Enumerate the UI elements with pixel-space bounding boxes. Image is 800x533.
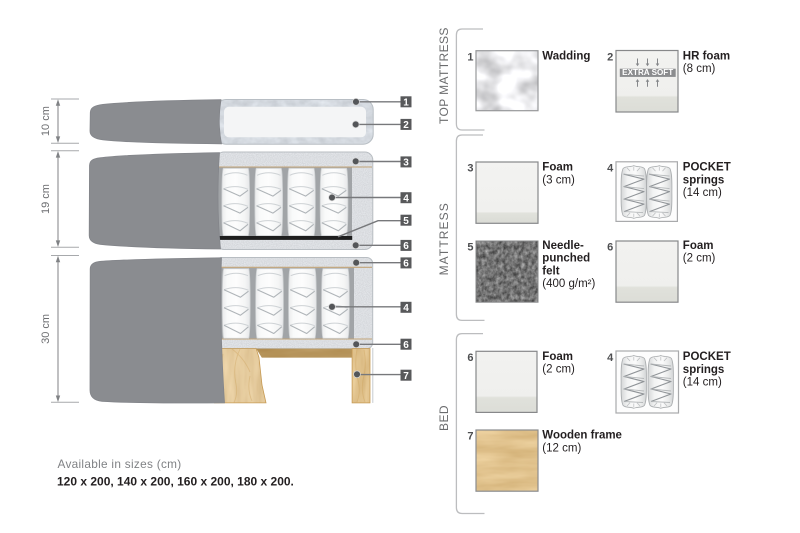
svg-text:Foam: Foam bbox=[683, 240, 714, 252]
svg-text:POCKET: POCKET bbox=[683, 351, 731, 363]
svg-text:(3 cm): (3 cm) bbox=[542, 174, 575, 186]
svg-text:(400 g/m²): (400 g/m²) bbox=[542, 278, 595, 290]
svg-text:BED: BED bbox=[437, 405, 451, 431]
svg-text:(12 cm): (12 cm) bbox=[542, 442, 581, 454]
svg-text:4: 4 bbox=[607, 352, 614, 364]
svg-text:2: 2 bbox=[607, 52, 613, 64]
svg-text:4: 4 bbox=[607, 163, 614, 175]
svg-text:6: 6 bbox=[403, 259, 409, 270]
svg-text:4: 4 bbox=[403, 193, 409, 204]
svg-text:felt: felt bbox=[542, 265, 559, 277]
svg-text:3: 3 bbox=[467, 163, 473, 175]
svg-text:7: 7 bbox=[467, 431, 473, 443]
svg-text:EXTRA SOFT: EXTRA SOFT bbox=[622, 68, 673, 77]
svg-text:(2 cm): (2 cm) bbox=[683, 253, 716, 265]
svg-text:Wadding: Wadding bbox=[542, 50, 590, 62]
svg-text:punched: punched bbox=[542, 253, 590, 265]
svg-text:120 x 200, 140 x 200, 160 x 20: 120 x 200, 140 x 200, 160 x 200, 180 x 2… bbox=[57, 474, 294, 488]
svg-text:(14 cm): (14 cm) bbox=[683, 187, 722, 199]
svg-text:6: 6 bbox=[403, 241, 409, 252]
svg-text:5: 5 bbox=[467, 242, 473, 254]
svg-text:1: 1 bbox=[467, 52, 473, 64]
svg-text:1: 1 bbox=[403, 97, 409, 108]
svg-text:Foam: Foam bbox=[542, 351, 573, 363]
svg-text:springs: springs bbox=[683, 364, 725, 376]
svg-text:6: 6 bbox=[467, 352, 473, 364]
svg-text:Needle-: Needle- bbox=[542, 240, 584, 252]
svg-text:Foam: Foam bbox=[542, 162, 573, 174]
svg-text:(8 cm): (8 cm) bbox=[683, 63, 716, 75]
svg-text:TOP MATTRESS: TOP MATTRESS bbox=[437, 27, 451, 124]
svg-text:19 cm: 19 cm bbox=[40, 184, 52, 214]
svg-text:(14 cm): (14 cm) bbox=[683, 377, 722, 389]
svg-text:30 cm: 30 cm bbox=[40, 314, 52, 344]
svg-text:6: 6 bbox=[607, 242, 613, 254]
svg-text:2: 2 bbox=[403, 120, 409, 131]
svg-text:Wooden frame: Wooden frame bbox=[542, 430, 622, 442]
svg-text:MATTRESS: MATTRESS bbox=[437, 202, 451, 275]
svg-text:10 cm: 10 cm bbox=[40, 106, 52, 136]
svg-text:7: 7 bbox=[403, 371, 409, 382]
svg-text:4: 4 bbox=[403, 303, 409, 314]
svg-text:POCKET: POCKET bbox=[683, 162, 731, 174]
svg-text:5: 5 bbox=[403, 216, 409, 227]
svg-text:HR foam: HR foam bbox=[683, 50, 730, 62]
svg-text:(2 cm): (2 cm) bbox=[542, 364, 575, 376]
svg-text:springs: springs bbox=[683, 174, 725, 186]
svg-text:Available in sizes (cm): Available in sizes (cm) bbox=[58, 457, 182, 471]
svg-text:3: 3 bbox=[403, 158, 409, 169]
svg-text:6: 6 bbox=[403, 340, 409, 351]
